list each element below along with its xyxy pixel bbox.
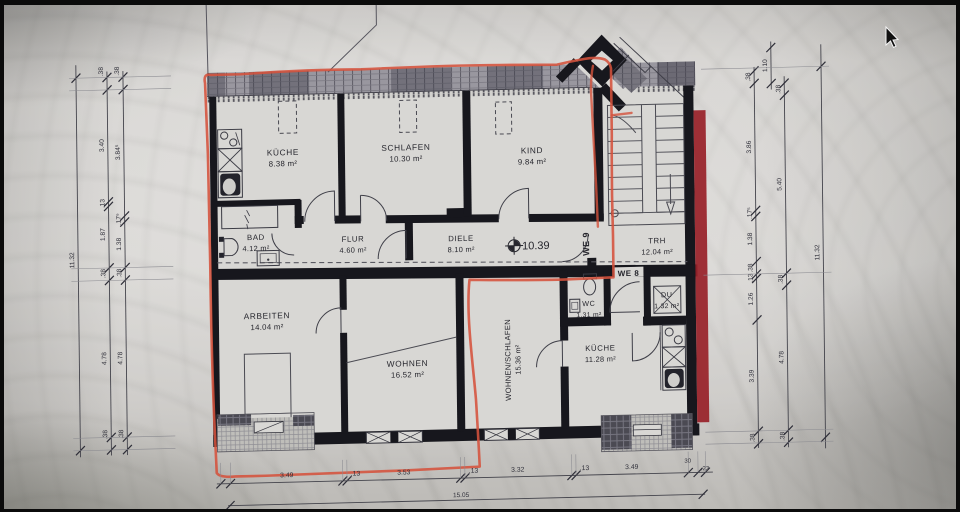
svg-text:KIND: KIND: [521, 145, 543, 156]
svg-text:30: 30: [684, 459, 691, 465]
svg-text:1.10: 1.10: [762, 59, 769, 72]
svg-text:.13: .13: [469, 468, 479, 475]
svg-text:.13: .13: [99, 199, 106, 209]
svg-text:ARBEITEN: ARBEITEN: [244, 310, 290, 321]
svg-text:FLUR: FLUR: [342, 234, 365, 244]
svg-text:KÜCHE: KÜCHE: [267, 147, 299, 158]
svg-text:1.31 m²: 1.31 m²: [576, 312, 602, 320]
svg-text:.38: .38: [114, 66, 121, 76]
svg-text:WOHNEN: WOHNEN: [387, 358, 429, 369]
svg-text:4.78: 4.78: [778, 351, 785, 364]
svg-text:.38: .38: [116, 268, 123, 278]
svg-text:4.78: 4.78: [101, 352, 108, 365]
svg-text:1.38: 1.38: [116, 237, 123, 250]
svg-text:WC: WC: [582, 299, 595, 308]
svg-text:TRH: TRH: [648, 236, 666, 245]
svg-text:3.40: 3.40: [99, 139, 106, 152]
svg-text:11.32: 11.32: [814, 244, 821, 261]
svg-text:8.10 m²: 8.10 m²: [447, 245, 474, 255]
svg-text:WE 8: WE 8: [618, 269, 640, 279]
svg-text:3.32: 3.32: [511, 467, 525, 474]
svg-text:.38: .38: [779, 431, 786, 441]
svg-text:.38: .38: [747, 263, 754, 273]
svg-text:1.87: 1.87: [100, 228, 107, 241]
svg-text:WOHNEN/SCHLAFEN: WOHNEN/SCHLAFEN: [503, 319, 513, 401]
svg-text:1.26: 1.26: [748, 292, 755, 305]
svg-text:.17⁵: .17⁵: [747, 207, 754, 219]
svg-text:.38: .38: [745, 72, 752, 82]
svg-text:4.60 m²: 4.60 m²: [339, 245, 366, 255]
svg-text:16.52 m²: 16.52 m²: [391, 370, 424, 380]
svg-text:12.04 m²: 12.04 m²: [641, 247, 673, 257]
svg-text:15.05: 15.05: [453, 492, 470, 499]
svg-text:11.28 m²: 11.28 m²: [585, 354, 616, 364]
svg-text:.38: .38: [98, 67, 105, 77]
svg-text:5.40: 5.40: [776, 178, 783, 191]
svg-text:.13: .13: [747, 273, 754, 283]
svg-text:3.49: 3.49: [280, 472, 294, 479]
svg-text:3.53: 3.53: [397, 469, 411, 476]
svg-text:8.38 m²: 8.38 m²: [269, 159, 298, 169]
svg-text:.13: .13: [351, 470, 361, 477]
svg-text:.17⁹: .17⁹: [116, 213, 123, 225]
svg-text:KÜCHE: KÜCHE: [585, 343, 615, 353]
svg-text:3.39: 3.39: [749, 369, 756, 382]
svg-text:.38: .38: [100, 269, 107, 279]
svg-text:4.78: 4.78: [117, 351, 124, 364]
svg-text:.38: .38: [775, 84, 782, 94]
svg-text:14.04 m²: 14.04 m²: [250, 322, 283, 332]
svg-text:.38: .38: [749, 433, 756, 443]
svg-text:1.32 m²: 1.32 m²: [654, 303, 680, 311]
svg-text:1.38: 1.38: [747, 232, 754, 245]
svg-text:3.84⁵: 3.84⁵: [115, 144, 122, 160]
svg-text:.13: .13: [580, 465, 590, 472]
svg-text:15.36 m²: 15.36 m²: [513, 344, 522, 375]
svg-text:9.84 m²: 9.84 m²: [518, 157, 547, 167]
svg-text:SCHLAFEN: SCHLAFEN: [381, 142, 430, 153]
svg-text:11.32: 11.32: [69, 252, 76, 269]
svg-text:WE 9: WE 9: [581, 232, 591, 256]
svg-text:10.30 m²: 10.30 m²: [389, 154, 422, 164]
svg-text:3.86: 3.86: [746, 140, 753, 153]
svg-text:3.49: 3.49: [625, 464, 639, 471]
svg-text:.38: .38: [778, 274, 785, 284]
svg-text:.23: .23: [701, 466, 710, 472]
svg-text:BAD: BAD: [247, 233, 265, 242]
svg-text:10.39: 10.39: [522, 240, 550, 253]
svg-text:4.12 m²: 4.12 m²: [242, 244, 269, 254]
svg-text:DU: DU: [661, 290, 673, 299]
svg-text:DIELE: DIELE: [448, 234, 474, 244]
